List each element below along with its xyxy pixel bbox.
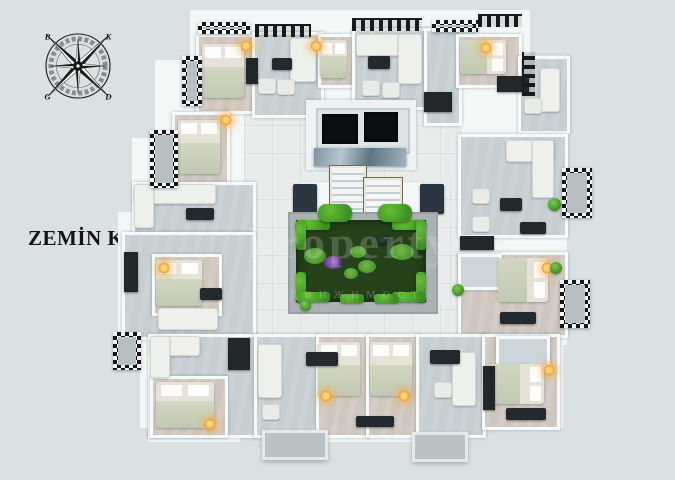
sofa <box>532 140 554 198</box>
bed <box>370 342 412 396</box>
hedge-stair-left <box>318 204 352 222</box>
elevator-shaft-2 <box>364 112 398 142</box>
hedge <box>296 220 306 250</box>
balcony-railing <box>478 14 522 27</box>
garden-plant <box>350 246 366 258</box>
kitchen-counter <box>460 236 494 250</box>
dresser <box>506 408 546 420</box>
desk <box>200 288 222 300</box>
lamp-glow <box>320 390 332 402</box>
entrance-patio <box>262 430 328 460</box>
sofa <box>158 308 218 330</box>
balcony-railing <box>352 18 422 31</box>
balcony-floor <box>437 25 473 27</box>
sofa <box>134 184 154 228</box>
kitchen-counter <box>246 58 258 84</box>
compass-label-east: D <box>104 92 112 102</box>
armchair <box>472 188 490 204</box>
balcony-checker <box>562 168 592 218</box>
kitchen-counter <box>124 252 138 292</box>
balcony-railing <box>522 52 535 96</box>
courtyard-bench-right <box>420 184 444 214</box>
bed <box>202 44 244 98</box>
bed <box>178 120 220 174</box>
desk <box>520 222 546 234</box>
elevator-shaft-1 <box>322 114 358 144</box>
balcony-checker <box>560 280 590 328</box>
bed <box>320 40 347 78</box>
potted-plant <box>548 198 561 211</box>
armchair <box>258 78 276 94</box>
potted-plant <box>452 284 464 296</box>
hedge <box>374 294 398 303</box>
lamp-glow <box>543 364 555 376</box>
potted-plant <box>550 262 562 274</box>
armchair <box>472 216 490 232</box>
lamp-glow <box>310 40 322 52</box>
lamp-glow <box>204 418 216 430</box>
coffee-table <box>272 58 292 70</box>
lamp-glow <box>398 390 410 402</box>
stone-feature-wall <box>314 148 406 166</box>
armchair <box>277 79 295 95</box>
balcony-floor <box>118 337 136 365</box>
balcony-checker <box>182 56 202 106</box>
purple-flower-bed <box>324 256 342 269</box>
dresser <box>500 312 536 324</box>
lamp-glow <box>220 114 232 126</box>
sofa <box>150 336 170 378</box>
compass-hub-center <box>76 64 80 68</box>
garden-plant <box>358 260 376 273</box>
kitchen-counter <box>424 92 452 112</box>
lamp-glow <box>158 262 170 274</box>
garden-shrub <box>304 248 326 264</box>
balcony-floor <box>155 135 173 183</box>
sofa <box>258 344 282 398</box>
bed <box>318 342 360 396</box>
lamp-glow <box>480 42 492 54</box>
sofa <box>540 68 560 112</box>
bed <box>498 258 548 302</box>
armchair <box>262 404 280 420</box>
balcony-railing <box>255 24 311 37</box>
armchair <box>382 82 400 98</box>
entrance-patio <box>412 432 468 462</box>
coffee-table <box>368 56 390 69</box>
armchair <box>362 80 380 96</box>
desk <box>186 208 214 220</box>
desk <box>306 352 338 366</box>
lamp-glow <box>240 40 252 52</box>
compass-rose-icon: K D G B <box>30 18 126 114</box>
coffee-table <box>500 198 522 211</box>
compass-label-west: B <box>44 32 51 42</box>
balcony-checker <box>113 332 141 370</box>
compass-label-south: G <box>44 92 51 102</box>
balcony-floor <box>565 285 585 323</box>
courtyard-bench-left <box>293 184 317 214</box>
balcony-checker <box>150 130 178 188</box>
compass-label-north: K <box>104 32 112 42</box>
balcony-floor <box>187 61 197 101</box>
kitchen-counter <box>228 338 250 370</box>
hedge-stair-right <box>378 204 412 222</box>
armchair <box>434 382 452 398</box>
sofa <box>356 34 400 56</box>
garden-plant <box>344 268 358 279</box>
balcony-floor <box>567 173 587 213</box>
balcony-checker <box>198 22 250 34</box>
wardrobe <box>483 366 495 410</box>
sofa <box>398 34 422 84</box>
floorplan-render: K D G B ZEMİN KAT <box>0 0 675 480</box>
balcony-floor <box>203 27 245 29</box>
bathroom-right <box>458 254 502 290</box>
hedge <box>416 220 426 250</box>
potted-plant <box>300 300 311 311</box>
garden-planter <box>376 234 390 246</box>
balcony-checker <box>432 20 478 32</box>
hedge <box>340 294 364 303</box>
garden-shrub <box>390 244 414 260</box>
desk <box>430 350 460 364</box>
armchair <box>524 98 542 114</box>
dresser <box>356 416 394 427</box>
